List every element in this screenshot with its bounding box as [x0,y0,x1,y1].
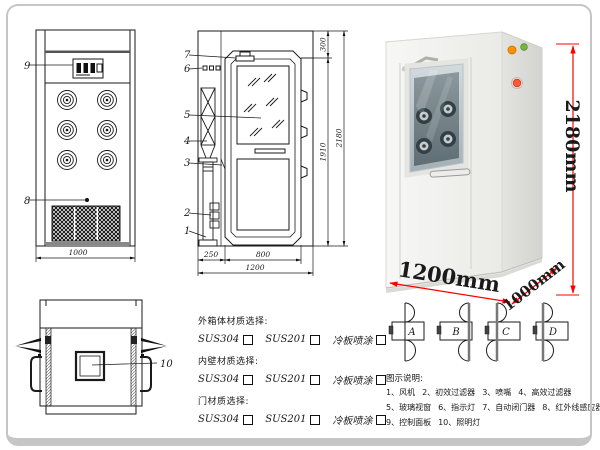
door-option-a: A [388,301,430,363]
part-label-4: 4 [183,136,190,147]
part-label-7: 7 [184,50,191,61]
dim-800: 800 [256,250,271,259]
part-label-6: 6 [184,64,191,75]
legend-item: 9、控制面板 [386,418,431,427]
infrared-sensor-dot [85,198,89,202]
legend-line: 1、风机2、初效过滤器3、喷嘴4、高效过滤器 [386,387,598,398]
door-swing-arrows [15,338,167,353]
checkbox [376,375,386,385]
material-option-label: SUS201 [265,334,306,345]
part-label-1: 1 [184,226,190,237]
material-section-title: 内壁材质选择: [198,354,386,367]
side-view-drawing: 7 6 5 4 3 2 1 250 800 1200 300 1910 2180 [176,28,364,280]
checkbox [310,415,320,425]
material-section-door: 门材质选择: SUS304 SUS201 冷板喷涂 [198,394,386,427]
dim-250: 250 [203,250,219,259]
legend-title: 图示说明: [386,372,598,384]
legend-item: 7、自动闭门器 [482,403,535,412]
dim-1200: 1200 [245,263,264,272]
door-handle [255,149,285,153]
door-swing-options: A B C D [388,301,574,363]
product-photo: 2180mm 1200mm 1000mm [360,6,600,306]
door-lower-panel [237,159,289,230]
legend-item: 6、指示灯 [438,403,475,412]
glass-hatch [244,74,284,136]
door-outline [225,51,301,245]
checkbox [243,335,253,345]
material-section-title: 门材质选择: [198,394,386,407]
cabinet-side-face [502,32,542,272]
dim-1000: 1000 [68,248,87,257]
checkbox [376,415,386,425]
material-section-outer-box: 外箱体材质选择: SUS304 SUS201 冷板喷涂 [198,314,386,347]
door-option-label: A [407,327,415,338]
nozzle-bracket [221,159,225,169]
indicator-light-green [521,44,528,51]
door-glass [237,66,289,144]
part-label-9: 9 [24,61,31,72]
dim-2180: 2180 [335,128,344,148]
fan-column [199,158,217,246]
material-option-label: SUS304 [198,374,239,385]
air-return-grille [52,206,120,241]
material-option-label: SUS201 [265,374,306,385]
photo-dim-height: 2180mm [561,99,583,192]
legend-item: 1、风机 [386,388,415,397]
checkbox [310,375,320,385]
legend-line: 9、控制面板10、照明灯 [386,417,598,428]
material-selection: 外箱体材质选择: SUS304 SUS201 冷板喷涂 内壁材质选择: SUS3… [198,314,386,434]
front-view-drawing: 1000 9 8 [16,28,166,273]
indicator-lights [203,66,220,70]
material-option-label: SUS304 [198,334,239,345]
legend-line: 5、玻璃视窗6、指示灯7、自动闭门器8、红外线感应器 [386,402,598,413]
legend: 图示说明: 1、风机2、初效过滤器3、喷嘴4、高效过滤器 5、玻璃视窗6、指示灯… [386,372,598,432]
legend-item: 3、喷嘴 [482,388,511,397]
checkbox [310,335,320,345]
material-option-label: SUS201 [265,414,306,425]
door-closer [236,52,254,61]
part-label-3: 3 [184,158,190,169]
emergency-button [513,79,521,87]
door-option-c: C [484,301,526,363]
material-section-title: 外箱体材质选择: [198,314,386,327]
air-nozzles [58,91,117,170]
top-view-drawing: 10 [12,290,187,432]
part-label-8: 8 [24,196,30,207]
control-panel [73,59,103,78]
top-trim-band [45,51,130,54]
door-option-label: D [548,327,557,338]
material-option-label: 冷板喷涂 [332,372,372,387]
primary-filter-stack [210,203,219,228]
material-section-inner-wall: 内壁材质选择: SUS304 SUS201 冷板喷涂 [198,354,386,387]
legend-item: 4、高效过滤器 [518,388,571,397]
indicator-light-orange [508,46,516,54]
door-option-label: C [502,327,510,338]
legend-item: 8、红外线感应器 [542,403,600,412]
dim-1910: 1910 [319,142,328,161]
material-option-label: 冷板喷涂 [332,332,372,347]
checkbox [243,375,253,385]
dim-300: 300 [319,37,328,52]
legend-item: 10、照明灯 [438,418,480,427]
material-option-label: 冷板喷涂 [332,412,372,427]
door-option-d: D [532,301,574,363]
legend-item: 2、初效过滤器 [422,388,475,397]
door-option-b: B [436,301,478,363]
hepa-filter-column [201,88,215,158]
legend-item: 5、玻璃视窗 [386,403,431,412]
part-label-5: 5 [184,110,190,121]
part-label-2: 2 [183,208,190,219]
material-option-label: SUS304 [198,414,239,425]
checkbox [376,335,386,345]
checkbox [243,415,253,425]
part-label-10: 10 [160,359,173,370]
side-nozzle-profiles [301,90,307,178]
bottom-threshold [46,406,136,414]
door-option-label: B [451,327,459,338]
